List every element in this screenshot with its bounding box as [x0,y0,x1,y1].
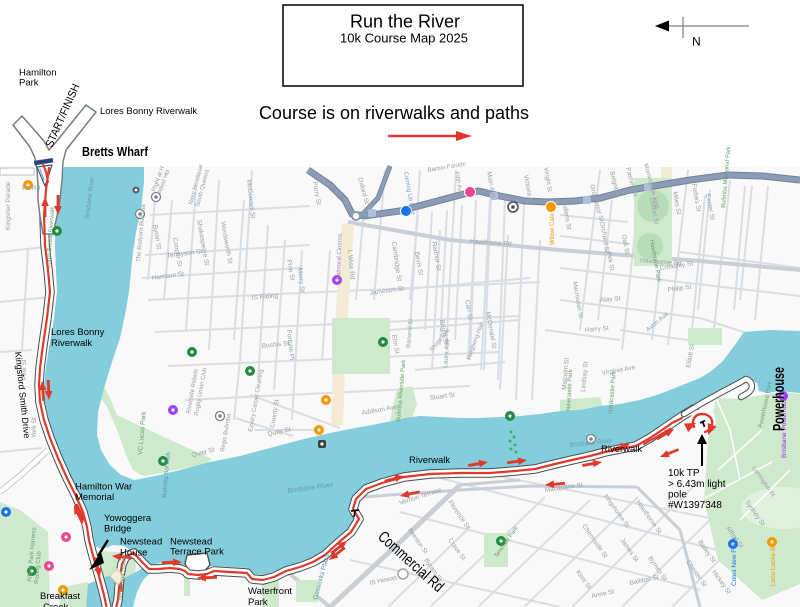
svg-text:Yowoggera: Yowoggera [104,513,152,524]
svg-text:Lores Bonny Riverwalk: Lores Bonny Riverwalk [100,106,197,117]
svg-text:> 6.43m light: > 6.43m light [668,479,726,490]
svg-text:Creek: Creek [43,602,69,607]
svg-text:Bridge: Bridge [104,524,131,535]
svg-text:Coles New Farm: Coles New Farm [731,538,738,586]
svg-text:Memorial: Memorial [75,492,114,503]
svg-text:10k TP: 10k TP [668,468,700,479]
svg-text:Waterfront: Waterfront [248,586,292,597]
svg-text:House: House [120,548,147,559]
svg-text:Lores Bonny: Lores Bonny [51,327,105,338]
svg-text:Park: Park [19,78,39,89]
svg-text:Hamilton War: Hamilton War [75,482,132,493]
svg-text:Bretts Wharf: Bretts Wharf [82,145,149,159]
svg-text:Breakfast: Breakfast [40,591,80,602]
svg-text:Pa Rd: Pa Rd [22,185,40,192]
svg-text:Loco Locke Bar: Loco Locke Bar [770,540,777,586]
svg-text:Course is on riverwalks and pa: Course is on riverwalks and paths [259,103,529,123]
svg-text:Riverwalk: Riverwalk [409,455,450,466]
svg-text:Terrace Park: Terrace Park [170,547,224,558]
svg-text:Powerhouse: Powerhouse [771,367,788,431]
svg-text:Riverwalk: Riverwalk [51,338,92,349]
svg-text:Park: Park [248,597,268,607]
svg-text:Newstead: Newstead [120,537,162,548]
svg-text:Run the River: Run the River [350,12,460,32]
svg-text:Willow Cafe: Willow Cafe [550,213,556,245]
svg-text:10k Course Map 2025: 10k Course Map 2025 [340,31,468,46]
svg-text:Riverwalk: Riverwalk [601,444,642,455]
svg-text:Kingsher Parade: Kingsher Parade [5,181,12,230]
svg-text:pole: pole [668,490,687,501]
svg-text:#W1397348: #W1397348 [668,500,722,511]
svg-text:N: N [692,35,701,49]
